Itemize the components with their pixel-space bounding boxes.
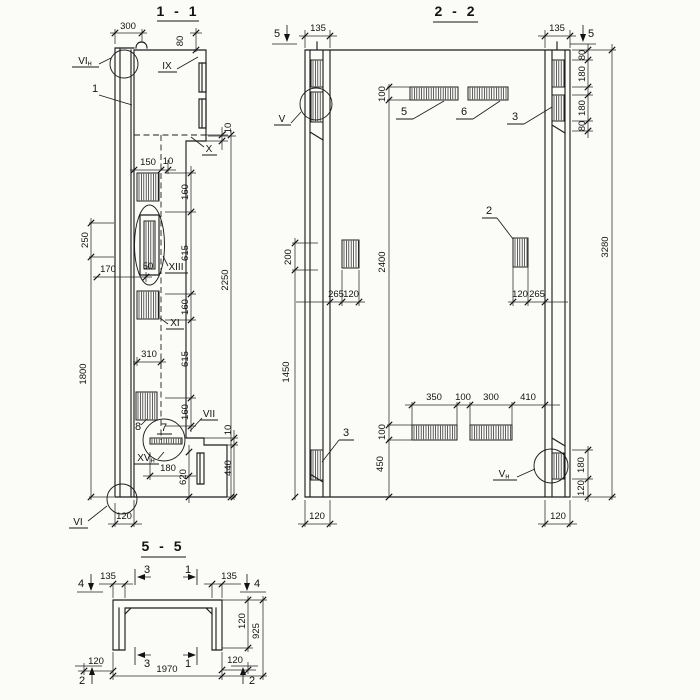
s5-marker-3-top: 3 [144,564,150,576]
drawing-sheet: 1 - 1 300 80 VIн IX 1 150 10 X 10 160 61… [0,0,700,700]
s1-ref-VII: VII [203,409,215,420]
s2-dim-1450: 1450 [281,361,292,382]
section-1-1: 1 - 1 300 80 VIн IX 1 150 10 X 10 160 61… [69,3,238,528]
s1-dim-180: 180 [160,463,176,474]
s1-dim-10c: 10 [223,425,234,436]
hatch-fill [313,93,320,121]
s1-dim-615a: 615 [180,245,191,261]
section-1-1-title: 1 - 1 [156,3,199,19]
hatch-fill [313,451,320,479]
s2-dim-3280: 3280 [600,236,611,257]
s1-dim-120: 120 [116,511,132,522]
s1-ref-XIII: XIII [168,262,183,273]
s2-item-5: 5 [401,106,407,118]
s2-item-6: 6 [461,106,467,118]
hatch-fill [554,454,561,478]
s2-dim-100b: 100 [455,392,471,403]
s1-item-1: 1 [92,83,98,95]
s1-hidden-lines [134,135,206,440]
s5-dim-120-bottom-left: 120 [88,656,104,667]
s2-dim-120-left: 120 [343,289,359,300]
s2-dim-120-bottom-right: 120 [550,511,566,522]
hatch-fill [470,88,506,99]
s5-marker-3-bottom: 3 [144,658,150,670]
s2-dim-120-bottom-left: 120 [309,511,325,522]
section-5-5: 5 - 5 4 135 3 1 135 4 120 925 120 3 1 12… [75,538,267,687]
s2-dim-265-right: 265 [529,289,545,300]
detail-circle [534,449,568,483]
s1-dim-50: 50 [143,261,154,272]
s1-item-8: 8 [135,421,141,433]
hatch-fill [138,393,155,419]
s2-dim-180a: 180 [577,66,588,82]
s1-dim-250: 250 [80,232,91,248]
hatch-fill [554,96,561,120]
s2-dim-350: 350 [426,392,442,403]
s5-marker-2-left: 2 [79,675,85,687]
s5-dim-120-right: 120 [237,613,248,629]
s5-dim-1970: 1970 [156,664,177,675]
s5-marker-2-right: 2 [249,675,255,687]
s1-ref-XI: XI [170,318,179,329]
s2-dim-120rb: 120 [576,480,587,496]
s2-item-2: 2 [486,205,492,217]
hatch-fill [412,88,455,99]
s1-dim-160c: 160 [180,404,191,420]
s1-dim-10a: 10 [163,156,174,167]
hatch-fill [515,239,527,266]
section-5-5-title: 5 - 5 [141,538,184,554]
s1-ref-XVn: XVн [137,453,155,465]
s5-marker-1-bottom: 1 [185,658,191,670]
s2-dim-300: 300 [483,392,499,403]
embedded-plate [136,392,157,420]
s1-dim-440: 440 [223,460,234,476]
s2-dim-135-right: 135 [549,23,565,34]
s2-marker-5-right: 5 [588,28,594,40]
s1-dim-160b: 160 [180,299,191,315]
s1-dim-300: 300 [120,21,136,32]
s2-marker-5-left: 5 [274,28,280,40]
detail-ellipse [135,205,165,285]
s2-dim-2400: 2400 [377,251,388,272]
s1-item-7: 7 [161,422,167,434]
section-2-2-title: 2 - 2 [434,3,477,19]
s2-dim-200: 200 [283,249,294,265]
s2-item-3b: 3 [343,427,349,439]
section-2-2: 2 - 2 5 135 135 5 80 180 180 80 3280 V 1… [272,3,616,527]
s2-dim-100a: 100 [377,86,388,102]
s1-dim-150: 150 [140,157,156,168]
embedded-plate [150,438,182,444]
arrow-down-icon [284,34,586,42]
s2-ref-Vn: Vн [499,469,510,481]
s1-ref-X: X [206,144,213,155]
embedded-plate [468,87,508,100]
embedded-plate [410,87,458,100]
embedded-plate [342,240,359,268]
s1-dim-80: 80 [175,36,186,47]
s2-dim-180c: 180 [576,457,587,473]
s1-ref-IX: IX [162,61,172,72]
s5-marker-4-left: 4 [78,578,84,590]
s5-outline [113,600,222,650]
marker-arrowheads [88,574,250,675]
hatch-fill [554,61,561,86]
s1-dim-170: 170 [100,264,116,275]
s2-dim-135-left: 135 [310,23,326,34]
s5-dim-925: 925 [251,623,262,639]
s2-dim-120-right: 120 [512,289,528,300]
hatch-fill [313,61,320,86]
s5-dim-135-left: 135 [100,571,116,582]
detail-circle [107,484,137,514]
s5-marker-4-right: 4 [254,578,260,590]
s2-item-3a: 3 [512,111,518,123]
s1-dim-615b: 615 [180,351,191,367]
s1-dim-2250: 2250 [220,269,231,290]
s1-dim-160a: 160 [180,184,191,200]
hatch-fill [152,439,181,443]
s2-dim-410: 410 [520,392,536,403]
s5-dim-120-bottom-right: 120 [227,655,243,666]
s2-dim-450: 450 [375,456,386,472]
s2-dim-265-left: 265 [328,289,344,300]
s1-ref-VIn: VIн [78,56,92,68]
hatch-fill [414,426,455,439]
s5-marker-1-top: 1 [185,564,191,576]
hatch-fill [139,174,158,200]
s2-dim-100c: 100 [377,424,388,440]
hatch-fill [139,292,158,318]
hatch-fill [344,241,358,267]
s2-dimension-lines [292,30,616,527]
drawing-canvas: 1 - 1 300 80 VIн IX 1 150 10 X 10 160 61… [0,0,700,700]
s5-dim-135-right: 135 [221,571,237,582]
s2-ref-V: V [279,114,286,125]
s1-dim-1800: 1800 [78,363,89,384]
hatch-fill [472,426,510,439]
s1-dim-310: 310 [141,349,157,360]
s1-ref-VI: VI [73,517,82,528]
s2-dim-180b: 180 [577,100,588,116]
